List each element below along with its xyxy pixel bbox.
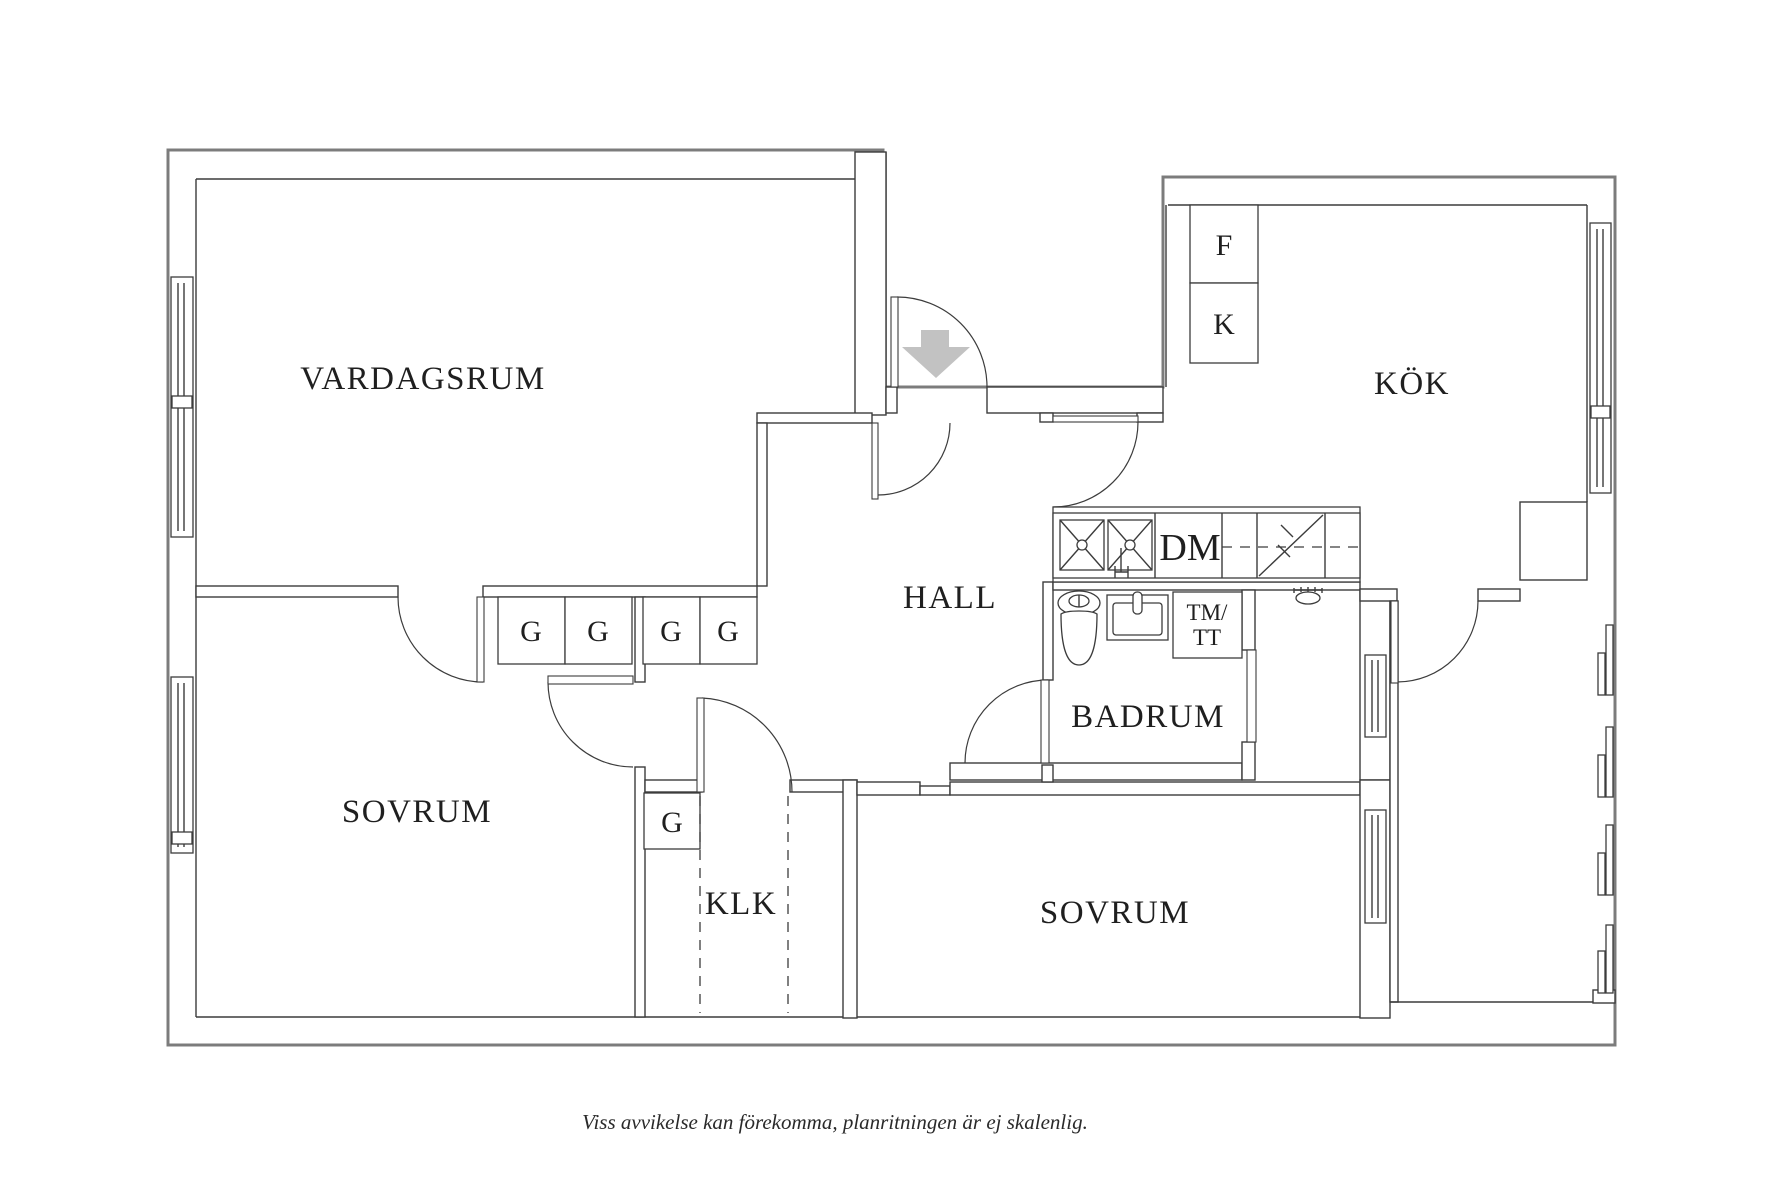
- wardrobe-label: G: [661, 806, 683, 839]
- room-label-bedroom-right: SOVRUM: [1040, 895, 1190, 931]
- freezer-label: K: [1213, 308, 1235, 341]
- toilet-icon: [1058, 591, 1100, 665]
- washer-dryer-label-line2: TT: [1193, 625, 1221, 650]
- kitchen-cabinet: [1520, 502, 1587, 580]
- closet-door-arc: [702, 698, 792, 792]
- window: [1590, 223, 1611, 493]
- room-label-closet: KLK: [705, 886, 777, 922]
- shower-icon: [1294, 587, 1322, 604]
- livingroom-bedroom-door-arc: [398, 597, 483, 682]
- floor-plan-svg: VARDAGSRUM KÖK HALL BADRUM SOVRUM SOVRUM…: [0, 0, 1780, 1187]
- entrance-arrow-icon: [902, 330, 970, 378]
- bathroom-door-arc: [965, 680, 1048, 763]
- window: [171, 277, 193, 537]
- room-label-hall: HALL: [903, 580, 997, 616]
- wardrobe-label: G: [587, 615, 609, 648]
- window: [171, 677, 193, 853]
- hall-door-arc: [878, 423, 950, 495]
- room-label-bedroom-left: SOVRUM: [342, 794, 492, 830]
- balcony-glazing: [1598, 625, 1613, 993]
- disclaimer-caption: Viss avvikelse kan förekomma, planritnin…: [582, 1110, 1088, 1134]
- dishwasher-label: DM: [1159, 527, 1220, 569]
- shower-sliding-door: [1247, 650, 1256, 742]
- kitchen-door-arc: [1053, 422, 1138, 507]
- balcony-door-arc: [1397, 601, 1478, 682]
- bedroom-left-door-arc: [548, 682, 633, 767]
- sink-basin-icon: [1108, 520, 1152, 578]
- room-label-bathroom: BADRUM: [1071, 699, 1225, 735]
- sink-basin-icon: [1060, 520, 1104, 570]
- room-label-kitchen: KÖK: [1374, 366, 1450, 402]
- room-label-living-room: VARDAGSRUM: [300, 361, 545, 397]
- wardrobe-label: G: [520, 615, 542, 648]
- wardrobe-label: G: [660, 615, 682, 648]
- entrance-door-leaf: [891, 297, 898, 387]
- window: [1365, 655, 1386, 737]
- floor-plan-page: VARDAGSRUM KÖK HALL BADRUM SOVRUM SOVRUM…: [0, 0, 1780, 1187]
- window: [1365, 810, 1386, 923]
- fridge-label: F: [1216, 229, 1233, 262]
- wardrobe-label: G: [717, 615, 739, 648]
- washbasin-icon: [1107, 592, 1168, 640]
- washer-dryer-label-line1: TM/: [1187, 600, 1229, 625]
